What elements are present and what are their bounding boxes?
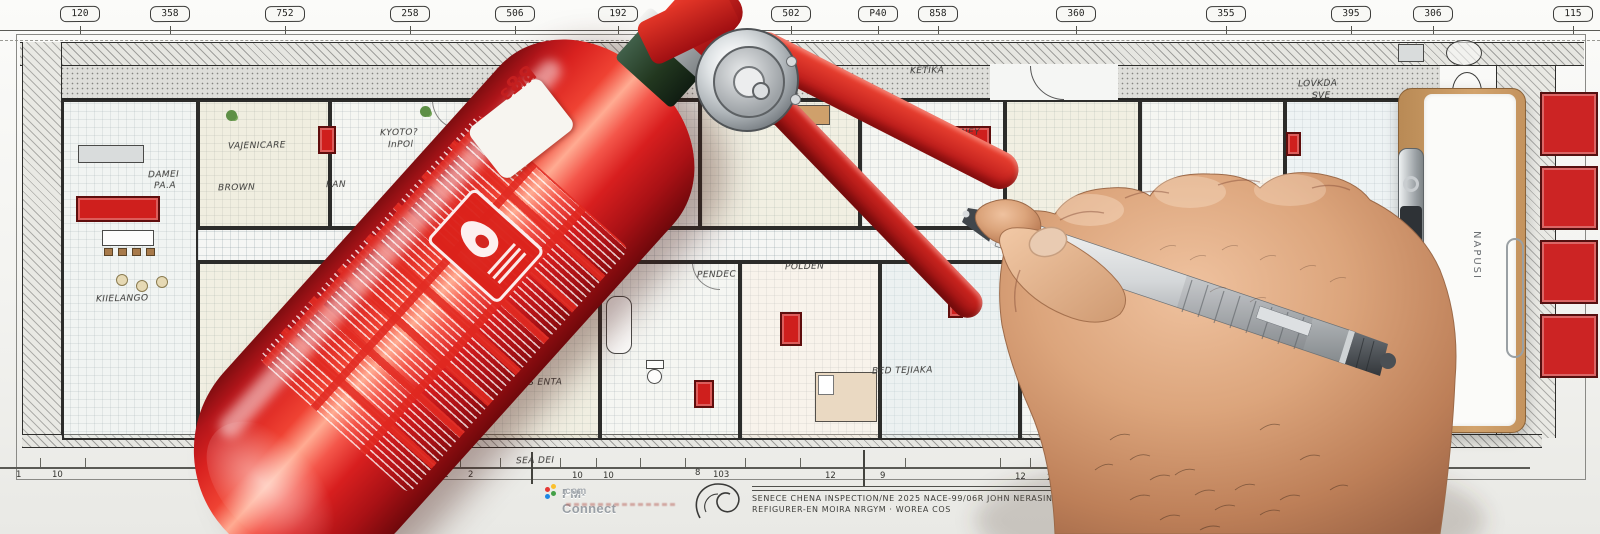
red-cabinet xyxy=(694,380,714,408)
dim-number: 10 xyxy=(52,470,63,480)
dim-box: 358 xyxy=(150,6,190,22)
toilet-tank xyxy=(646,360,664,369)
plant xyxy=(420,106,431,117)
room-label: PA.A xyxy=(154,181,176,191)
stool xyxy=(156,276,168,288)
dim-box: 858 xyxy=(918,6,958,22)
red-cabinet xyxy=(318,126,336,154)
room-label: KETIKA xyxy=(910,66,944,77)
chair xyxy=(118,248,127,256)
dim-number: 10 xyxy=(572,471,583,481)
sketch-fixture xyxy=(1446,40,1482,66)
valve-gauge-disc xyxy=(695,28,799,132)
lever-hinge xyxy=(752,82,770,100)
knuckle-highlight xyxy=(1056,194,1124,226)
caption-logo-scribble xyxy=(688,478,746,528)
watermark-tld: .com xyxy=(562,486,587,497)
dim-box: 506 xyxy=(495,6,535,22)
stool xyxy=(136,280,148,292)
dim-box: 306 xyxy=(1413,6,1453,22)
wall-hatch-left xyxy=(22,42,62,438)
chair xyxy=(146,248,155,256)
toilet-bowl xyxy=(647,369,662,384)
valve-bolt xyxy=(790,94,801,105)
room-label: KYOTO? xyxy=(380,128,418,139)
console-table xyxy=(78,145,144,163)
sketch-cabinet xyxy=(1398,44,1424,62)
stool xyxy=(116,274,128,286)
room-label: VAJENICARE xyxy=(228,140,286,151)
room xyxy=(198,100,330,228)
room-label: BROWN xyxy=(218,183,255,194)
bathtub xyxy=(606,296,632,354)
red-chair xyxy=(780,312,802,346)
plant xyxy=(226,110,237,121)
dim-number: 1 xyxy=(16,470,21,480)
room-label: SEA DEI xyxy=(516,456,555,467)
watermark-tagline-smudge xyxy=(566,503,678,506)
dim-box: 360 xyxy=(1056,6,1096,22)
dim-box: P40 xyxy=(858,6,898,22)
watermark-logo-dot xyxy=(545,487,550,492)
room-label: PENDEC xyxy=(697,270,736,281)
room-label: KIIELANGO xyxy=(96,293,149,304)
watermark-logo-dot xyxy=(551,491,556,496)
dining-table xyxy=(102,230,154,246)
caption-line: REFIGURER-EN MOIRA NRGYM · WOREA COS xyxy=(752,505,951,514)
dim-box: 115 xyxy=(1553,6,1593,22)
dim-number: 10 xyxy=(603,471,614,481)
dim-box: 120 xyxy=(60,6,100,22)
bottom-dim-heavy-tick xyxy=(863,450,865,486)
dim-number: 8 xyxy=(695,468,700,478)
room-label: SVE xyxy=(1312,91,1331,101)
room-label: POLDEN xyxy=(785,262,824,273)
dim-number: 12 xyxy=(825,471,836,481)
dim-number: 9 xyxy=(880,471,885,481)
knuckle-highlight xyxy=(1254,174,1326,206)
room-label: InPOl xyxy=(388,140,414,151)
room-label: DAMEI xyxy=(148,170,179,181)
valve-bolt xyxy=(786,56,797,67)
watermark-logo-dot xyxy=(545,494,550,499)
illustration-canvas: 120 358 752 258 506 192 021 502 P40 858 … xyxy=(0,0,1600,534)
pillow xyxy=(818,375,834,395)
dim-box: 258 xyxy=(390,6,430,22)
dim-box: 752 xyxy=(265,6,305,22)
hand-with-pen xyxy=(960,130,1600,534)
red-sofa xyxy=(76,196,160,222)
dim-box: 355 xyxy=(1206,6,1246,22)
watermark-logo-dot xyxy=(551,484,556,489)
chair xyxy=(104,248,113,256)
room-label: LOVKDA xyxy=(1298,79,1338,90)
chair xyxy=(132,248,141,256)
dim-box: 395 xyxy=(1331,6,1371,22)
room-label: KAN xyxy=(326,180,346,190)
room-label: BED TEJIAKA xyxy=(872,365,933,376)
dim-number: 2 xyxy=(468,470,473,480)
